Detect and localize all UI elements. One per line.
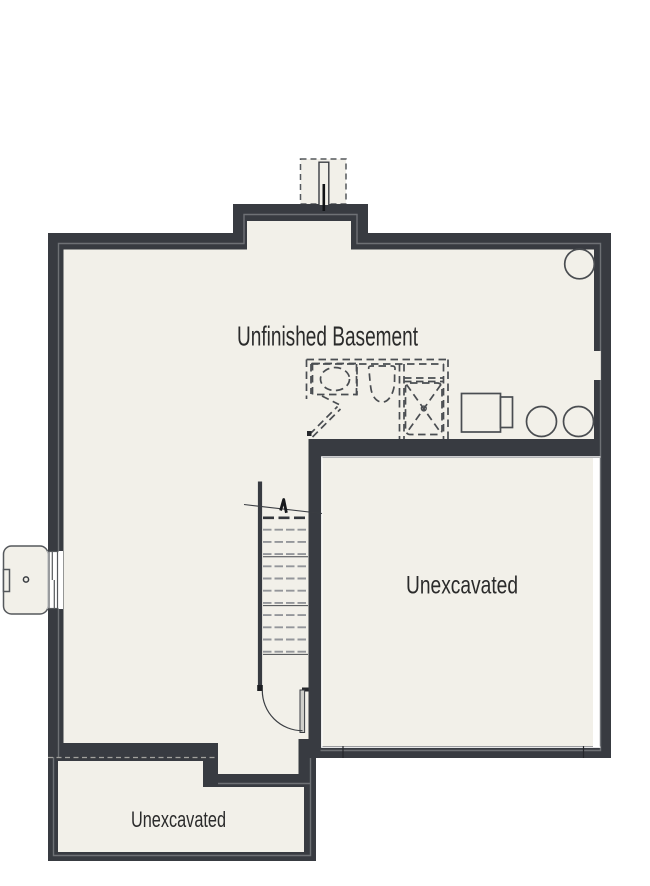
svg-text:Unexcavated: Unexcavated (131, 807, 226, 832)
svg-text:Unexcavated: Unexcavated (406, 572, 518, 600)
svg-text:Unfinished Basement: Unfinished Basement (237, 321, 418, 352)
